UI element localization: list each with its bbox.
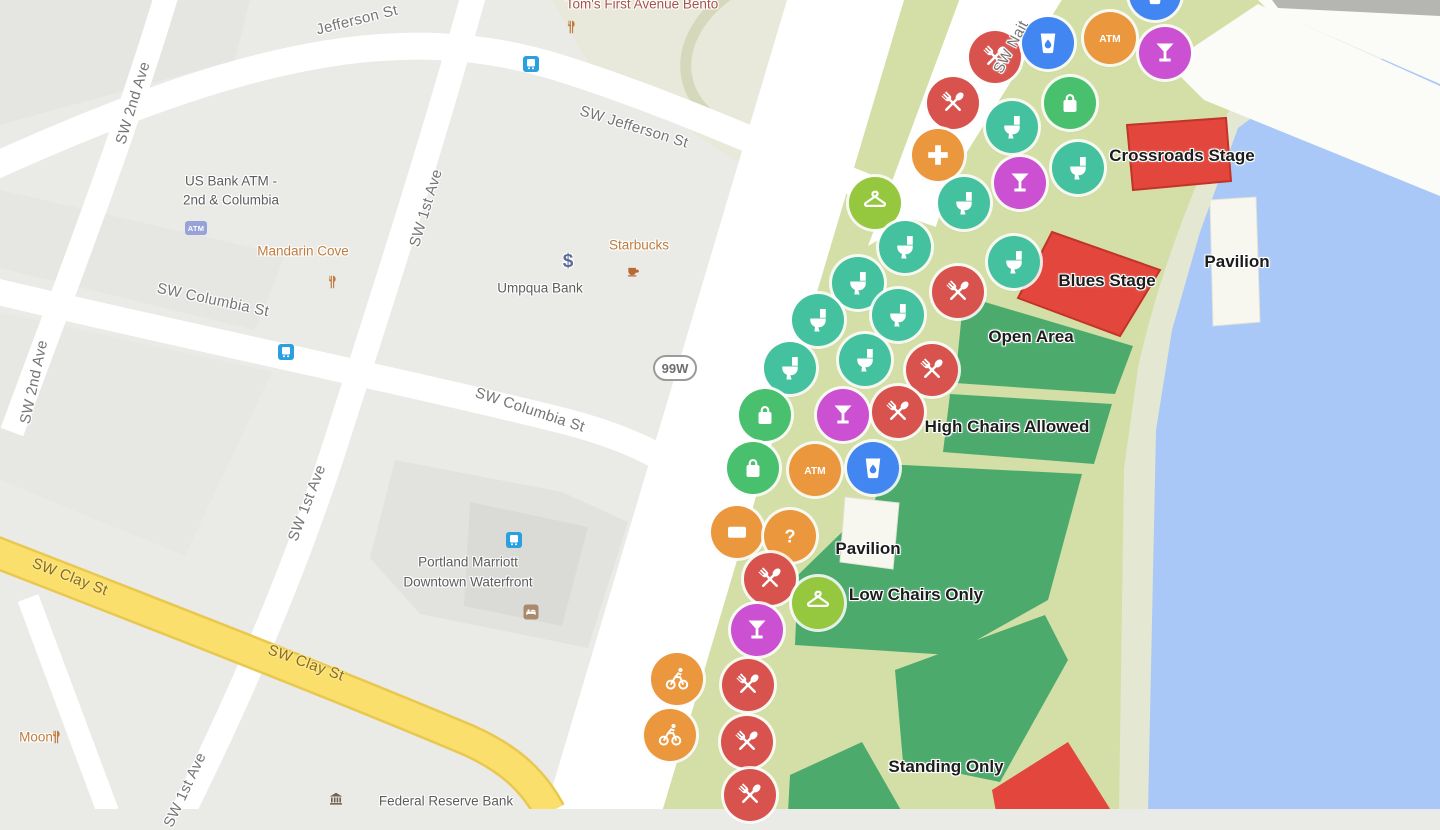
restaurant-icon[interactable] — [325, 275, 340, 290]
toilet-icon[interactable] — [938, 177, 990, 229]
food-icon[interactable] — [906, 344, 958, 396]
food-icon[interactable] — [969, 31, 1021, 83]
bar-icon[interactable] — [731, 604, 783, 656]
plus-icon[interactable] — [912, 129, 964, 181]
hanger-icon[interactable] — [849, 177, 901, 229]
food-icon[interactable] — [722, 659, 774, 711]
highway-shield-99w: 99W — [653, 355, 697, 381]
transit-icon[interactable] — [506, 532, 522, 548]
transit-icon[interactable] — [278, 344, 294, 360]
food-icon[interactable] — [932, 266, 984, 318]
water-icon[interactable] — [847, 442, 899, 494]
toilet-icon[interactable] — [792, 294, 844, 346]
bike-icon[interactable] — [651, 653, 703, 705]
food-icon[interactable] — [744, 553, 796, 605]
crossroads-stage-shape[interactable] — [1127, 118, 1231, 190]
restaurant-icon[interactable] — [564, 20, 579, 35]
pavilion-south-shape[interactable] — [840, 497, 899, 569]
toilet-icon[interactable] — [764, 342, 816, 394]
toilet-icon[interactable] — [872, 289, 924, 341]
toilet-icon[interactable] — [879, 221, 931, 273]
toilet-icon[interactable] — [988, 236, 1040, 288]
bike-icon[interactable] — [644, 709, 696, 761]
svg-text:?: ? — [784, 526, 795, 546]
lawn-high-chairs — [943, 394, 1112, 464]
map-canvas[interactable]: 99W ATMATM?ATM$Jefferson StSW Jefferson … — [0, 0, 1440, 809]
map-background — [0, 0, 1440, 809]
bag-icon[interactable] — [727, 442, 779, 494]
bar-icon[interactable] — [1139, 27, 1191, 79]
toilet-icon[interactable] — [839, 334, 891, 386]
dollar-icon[interactable]: $ — [563, 251, 574, 273]
hanger-icon[interactable] — [792, 577, 844, 629]
bag-icon[interactable] — [1044, 77, 1096, 129]
toilet-icon[interactable] — [986, 101, 1038, 153]
food-icon[interactable] — [872, 386, 924, 438]
food-icon[interactable] — [721, 716, 773, 768]
toilet-icon[interactable] — [1052, 142, 1104, 194]
restaurant-icon[interactable] — [49, 730, 64, 745]
hotel-icon[interactable] — [524, 605, 539, 620]
food-icon[interactable] — [927, 77, 979, 129]
atm-icon[interactable]: ATM — [1084, 12, 1136, 64]
bar-icon[interactable] — [817, 389, 869, 441]
water-icon[interactable] — [1022, 17, 1074, 69]
transit-icon[interactable] — [523, 56, 539, 72]
bank-icon[interactable] — [329, 792, 344, 807]
pavilion-north-shape[interactable] — [1210, 197, 1260, 326]
atm-icon[interactable]: ATM — [789, 444, 841, 496]
food-icon[interactable] — [724, 769, 776, 821]
card-icon[interactable] — [711, 506, 763, 558]
bag-icon[interactable] — [739, 389, 791, 441]
svg-text:ATM: ATM — [804, 466, 825, 477]
coffee-icon[interactable] — [626, 265, 640, 279]
bar-icon[interactable] — [994, 157, 1046, 209]
atm-icon[interactable]: ATM — [185, 221, 207, 235]
svg-text:ATM: ATM — [1099, 34, 1120, 45]
